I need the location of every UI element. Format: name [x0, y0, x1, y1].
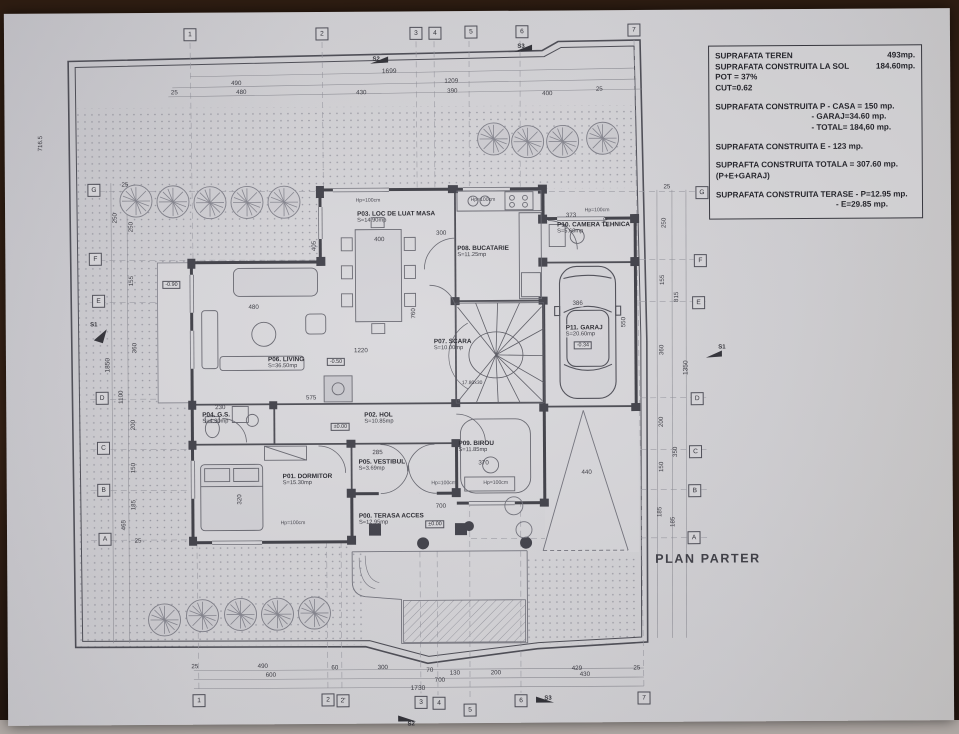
dim-right: 200	[658, 416, 665, 428]
grid-bubble-left-a: A	[99, 533, 112, 546]
dim-bottom: 700	[434, 677, 446, 684]
room-label-p02-hall: P02. HOLS=10.85mp	[364, 412, 393, 425]
room-label-p08-kitchen: P08. BUCATARIES=11.25mp	[457, 245, 509, 258]
window-parapet-label: Hp=100cm	[471, 197, 496, 203]
dim-inner: 440	[580, 469, 592, 476]
level-marker-exterior: -0.90	[162, 281, 180, 289]
dim-right: 25	[662, 183, 671, 190]
dim-inner: 230	[214, 404, 226, 411]
grid-bubble-top-4: 4	[428, 27, 441, 40]
dim-inner: 386	[571, 300, 583, 307]
room-label-p07-stairs: P07. SCARAS=10.00mp	[434, 338, 472, 351]
section-label-s2-bottom: S2	[407, 721, 414, 727]
dim-left: 1100	[118, 390, 125, 405]
grid-bubble-right-d: D	[691, 392, 704, 405]
dim-left: 465	[120, 519, 127, 531]
level-marker-hol: ±0.00	[331, 423, 351, 431]
dim-inner: 285	[371, 449, 383, 456]
photographed-drawing-paper: SUPRAFATA TEREN493mp. SUPRAFATA CONSTRUI…	[4, 8, 954, 726]
grid-bubble-bottom-3: 3	[415, 696, 428, 709]
dim-top: 25	[595, 86, 604, 93]
dim-top: 25	[170, 89, 179, 96]
dim-inner: 1220	[353, 347, 369, 354]
room-label-p05-vestibule: P05. VESTIBULS=3.69mp	[359, 458, 406, 471]
dim-right: 185	[669, 516, 676, 528]
grid-bubble-bottom-5: 5	[464, 704, 477, 717]
dim-bottom: 25	[632, 665, 641, 672]
info-line: - E=29.85 mp.	[716, 200, 916, 212]
dim-inner: 320	[236, 493, 243, 505]
info-line: CUT=0.62	[715, 82, 915, 94]
dim-bottom: 130	[449, 670, 461, 677]
info-line: - TOTAL= 184,60 mp.	[716, 122, 916, 134]
window-parapet-label: Hp=100cm	[483, 480, 508, 486]
info-line: SUPRAFTA CONSTRUITA TOTALA = 307.60 mp.	[716, 160, 916, 172]
dim-right: 1350	[682, 359, 689, 376]
dim-left: 185	[130, 499, 137, 511]
dim-top: 480	[235, 89, 247, 96]
grid-bubble-top-5: 5	[464, 26, 477, 39]
dim-left: 25	[120, 182, 129, 189]
grid-bubble-left-c: C	[97, 442, 110, 455]
level-marker-garaj: -0.34	[574, 341, 592, 349]
room-label-p06-living: P06. LIVINGS=36.50mp	[268, 356, 304, 369]
dim-top: 490	[230, 80, 242, 87]
section-label-s2-top: S2	[372, 57, 379, 63]
dim-left: 25	[134, 538, 143, 545]
grid-bubble-right-c: C	[689, 445, 702, 458]
info-value: 184.60mp.	[876, 61, 915, 72]
grid-bubble-left-d: D	[96, 392, 109, 405]
grid-bubble-bottom-4: 4	[433, 697, 446, 710]
dim-inner: 405	[311, 240, 318, 252]
grid-bubble-bottom-2p: 2'	[336, 694, 349, 707]
level-marker-terasa: ±0.00	[425, 520, 445, 528]
dim-left: 360	[131, 342, 138, 354]
dim-bottom: 430	[579, 671, 591, 678]
info-label: SUPRAFATA CONSTRUITA LA SOL	[715, 61, 849, 72]
info-line: SUPRAFATA CONSTRUITA E - 123 mp.	[716, 141, 916, 153]
grid-bubble-left-g: G	[87, 184, 100, 197]
dim-inner: 480	[247, 304, 259, 311]
dim-right: 815	[673, 291, 680, 303]
dim-left: 155	[128, 275, 135, 287]
dim-right: 360	[658, 344, 665, 356]
window-parapet-label: Hp=100cm	[431, 480, 456, 486]
dim-inner: 373	[565, 212, 577, 219]
dim-left: 200	[130, 419, 137, 431]
room-label-p10-tech-room: P10. CAMERA TEHNICAS=5.60mp	[557, 221, 630, 234]
dim-inner: 370	[477, 459, 489, 466]
dim-inner: 170	[603, 216, 610, 228]
dim-inner: 300	[435, 230, 447, 237]
grid-bubble-right-e: E	[692, 296, 705, 309]
section-label-s3-top: S3	[517, 44, 524, 50]
dim-inner: 575	[305, 394, 317, 401]
dim-left: 716.5	[37, 135, 44, 153]
dim-bottom: 60	[330, 664, 339, 671]
room-label-p03-dining: P03. LOC DE LUAT MASAS=14.90mp	[357, 210, 435, 223]
grid-bubble-right-g: G	[695, 186, 708, 199]
grid-bubble-left-f: F	[89, 253, 102, 266]
dim-bottom: 25	[190, 663, 199, 670]
dim-inner: 400	[373, 236, 385, 243]
dim-bottom: 200	[490, 669, 502, 676]
dim-left: 250	[112, 212, 119, 224]
info-line: (P+E+GARAJ)	[716, 170, 916, 182]
dim-inner: 700	[435, 503, 447, 510]
section-label-s3-bottom: S3	[544, 696, 551, 702]
dim-right: 185	[656, 506, 663, 518]
dim-right: 250	[661, 217, 668, 229]
room-label-p00-entry-terrace: P00. TERASA ACCESS=12.95mp	[359, 512, 424, 525]
grid-bubble-bottom-7: 7	[637, 691, 650, 704]
dim-right: 155	[659, 274, 666, 286]
section-label-s1-right: S1	[718, 344, 725, 350]
grid-bubble-bottom-2: 2	[321, 693, 334, 706]
info-value: 493mp.	[887, 50, 915, 61]
info-label: SUPRAFATA TEREN	[715, 51, 793, 62]
dim-top: 430	[355, 89, 367, 96]
grid-bubble-bottom-6: 6	[514, 694, 527, 707]
section-label-s1-left: S1	[90, 322, 97, 328]
dim-inner: 550	[620, 316, 627, 328]
window-parapet-label: Hp=100cm	[356, 198, 381, 204]
grid-bubble-top-1: 1	[183, 28, 196, 41]
dim-bottom: 490	[257, 663, 269, 670]
dim-inner: 760	[410, 307, 417, 319]
grid-bubble-right-f: F	[694, 254, 707, 267]
area-summary-box: SUPRAFATA TEREN493mp. SUPRAFATA CONSTRUI…	[708, 44, 923, 219]
grid-bubble-left-e: E	[92, 295, 105, 308]
dim-right: 150	[658, 461, 665, 473]
grid-bubble-right-b: B	[688, 484, 701, 497]
dim-bottom: 70	[425, 667, 434, 674]
dim-left: 250	[128, 221, 135, 233]
room-label-p11-garage: P11. GARAJS=20.60mp	[566, 324, 603, 337]
level-marker-living: -0.50	[327, 358, 345, 366]
window-parapet-label: Hp=100cm	[281, 520, 306, 526]
grid-bubble-top-7: 7	[627, 24, 640, 37]
dim-top: 1209	[443, 78, 459, 85]
grid-bubble-right-a: A	[688, 531, 701, 544]
dim-left: 1850	[104, 357, 111, 374]
dim-top-total: 1699	[381, 68, 398, 75]
grid-bubble-bottom-1: 1	[192, 694, 205, 707]
grid-bubble-left-b: B	[97, 484, 110, 497]
dim-bottom-total: 1730	[410, 685, 427, 692]
stair-tread-note: 17.80x30	[461, 380, 484, 386]
room-label-p01-bedroom: P01. DORMITORS=15.30mp	[283, 473, 333, 486]
dim-right: 350	[672, 446, 679, 458]
dim-bottom: 600	[265, 672, 277, 679]
room-label-p04-wc: P04. G.S.S=4.30mp	[202, 412, 230, 425]
window-parapet-label: Hp=100cm	[585, 207, 610, 213]
grid-bubble-top-6: 6	[515, 25, 528, 38]
grid-bubble-top-2: 2	[315, 27, 328, 40]
dim-top: 390	[446, 88, 458, 95]
plan-title: PLAN PARTER	[655, 551, 761, 566]
grid-bubble-top-3: 3	[409, 27, 422, 40]
dim-left: 150	[130, 462, 137, 474]
dim-bottom: 300	[377, 664, 389, 671]
dim-top: 400	[541, 90, 553, 97]
room-label-p09-office: P09. BIROUS=11.85mp	[458, 440, 494, 453]
